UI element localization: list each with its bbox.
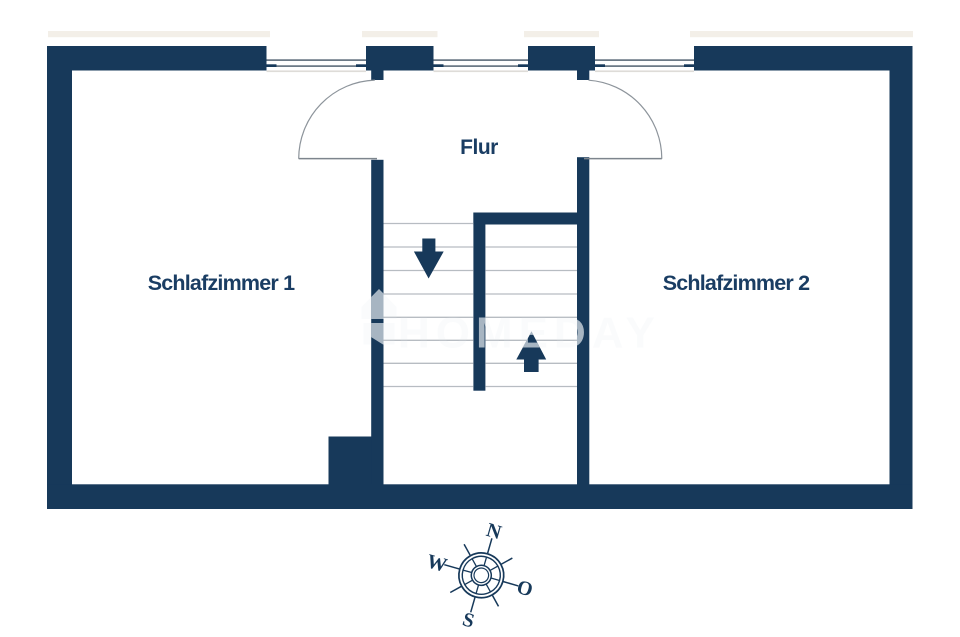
svg-text:S: S xyxy=(460,608,477,632)
svg-text:Flur: Flur xyxy=(460,136,498,159)
svg-text:W: W xyxy=(424,550,449,577)
svg-text:Schlafzimmer 2: Schlafzimmer 2 xyxy=(663,271,810,295)
svg-text:HOMEDAY: HOMEDAY xyxy=(398,309,661,358)
svg-text:Schlafzimmer 1: Schlafzimmer 1 xyxy=(148,271,295,295)
svg-text:O: O xyxy=(514,576,535,601)
svg-text:N: N xyxy=(484,519,504,544)
